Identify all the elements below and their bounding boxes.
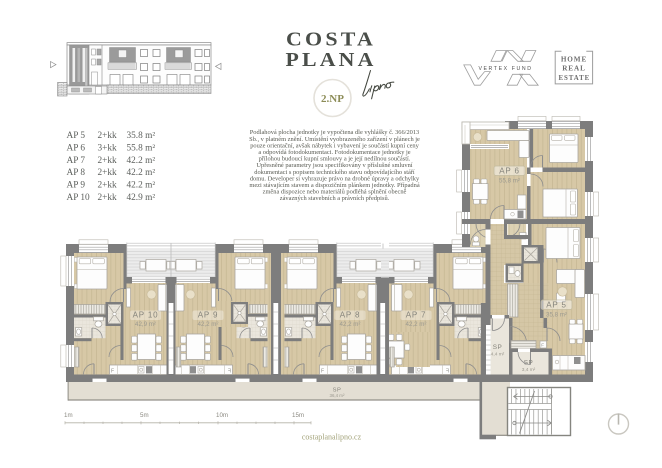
svg-text:42.9 m²: 42.9 m² bbox=[127, 193, 156, 203]
svg-text:2+kk: 2+kk bbox=[98, 156, 118, 166]
svg-text:SP: SP bbox=[493, 344, 503, 351]
svg-text:ESTATE: ESTATE bbox=[559, 75, 591, 82]
svg-text:10m: 10m bbox=[216, 412, 228, 419]
svg-text:REAL: REAL bbox=[562, 65, 586, 73]
svg-text:PLANA: PLANA bbox=[286, 49, 377, 71]
svg-text:HOME: HOME bbox=[561, 56, 587, 64]
svg-text:42,9 m²: 42,9 m² bbox=[135, 321, 156, 328]
svg-text:2+kk: 2+kk bbox=[98, 168, 118, 178]
svg-text:42.2 m²: 42.2 m² bbox=[127, 156, 156, 166]
svg-text:15m: 15m bbox=[292, 412, 304, 419]
svg-text:AP 6: AP 6 bbox=[499, 166, 519, 175]
svg-text:VERTEX FUND: VERTEX FUND bbox=[478, 66, 532, 72]
svg-text:2.NP: 2.NP bbox=[321, 93, 344, 105]
svg-text:AP 9: AP 9 bbox=[198, 311, 218, 320]
svg-text:COSTA: COSTA bbox=[286, 29, 376, 51]
svg-text:AP 9: AP 9 bbox=[67, 181, 86, 191]
svg-text:35,8 m²: 35,8 m² bbox=[546, 312, 567, 319]
svg-text:AP 10: AP 10 bbox=[133, 311, 159, 320]
svg-text:4,4 m²: 4,4 m² bbox=[491, 352, 505, 358]
svg-text:1m: 1m bbox=[64, 412, 73, 419]
svg-text:2+kk: 2+kk bbox=[98, 131, 118, 141]
svg-text:AP 5: AP 5 bbox=[67, 131, 86, 141]
svg-text:závazných stavebních a právníc: závazných stavebních a právních předpisů… bbox=[280, 195, 390, 202]
svg-text:36,4 m²: 36,4 m² bbox=[330, 393, 345, 398]
svg-text:AP 7: AP 7 bbox=[406, 311, 426, 320]
svg-text:42,2 m²: 42,2 m² bbox=[406, 321, 427, 328]
svg-text:AP 5: AP 5 bbox=[546, 300, 566, 309]
svg-text:35.8 m²: 35.8 m² bbox=[127, 131, 156, 141]
svg-text:55.8 m²: 55.8 m² bbox=[127, 144, 156, 154]
svg-text:3,4 m²: 3,4 m² bbox=[522, 367, 536, 373]
svg-text:42.2 m²: 42.2 m² bbox=[127, 168, 156, 178]
svg-text:SP: SP bbox=[524, 360, 534, 367]
svg-text:2+kk: 2+kk bbox=[98, 181, 118, 191]
svg-text:AP 10: AP 10 bbox=[67, 193, 91, 203]
svg-text:AP 7: AP 7 bbox=[67, 156, 86, 166]
svg-text:2+kk: 2+kk bbox=[98, 193, 118, 203]
svg-text:F: F bbox=[541, 343, 544, 348]
svg-text:42,2 m²: 42,2 m² bbox=[340, 321, 361, 328]
svg-text:42.2 m²: 42.2 m² bbox=[127, 181, 156, 191]
svg-text:AP 8: AP 8 bbox=[67, 168, 86, 178]
svg-text:3+kk: 3+kk bbox=[98, 144, 118, 154]
svg-text:5m: 5m bbox=[140, 412, 149, 419]
svg-text:55,8 m²: 55,8 m² bbox=[499, 178, 520, 185]
svg-text:42,2 m²: 42,2 m² bbox=[198, 321, 219, 328]
svg-text:AP 6: AP 6 bbox=[67, 144, 86, 154]
svg-text:costaplanalipno.cz: costaplanalipno.cz bbox=[302, 433, 362, 442]
svg-text:AP 8: AP 8 bbox=[340, 311, 360, 320]
